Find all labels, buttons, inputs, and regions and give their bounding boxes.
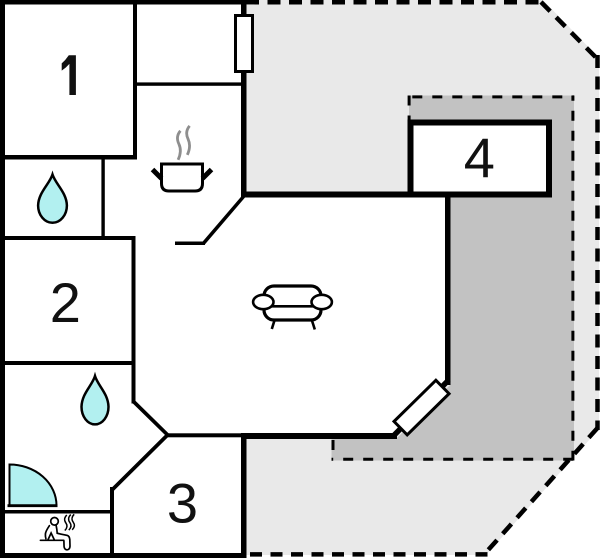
svg-text:2: 2: [50, 271, 81, 334]
svg-text:3: 3: [167, 472, 198, 535]
svg-text:4: 4: [464, 126, 495, 189]
